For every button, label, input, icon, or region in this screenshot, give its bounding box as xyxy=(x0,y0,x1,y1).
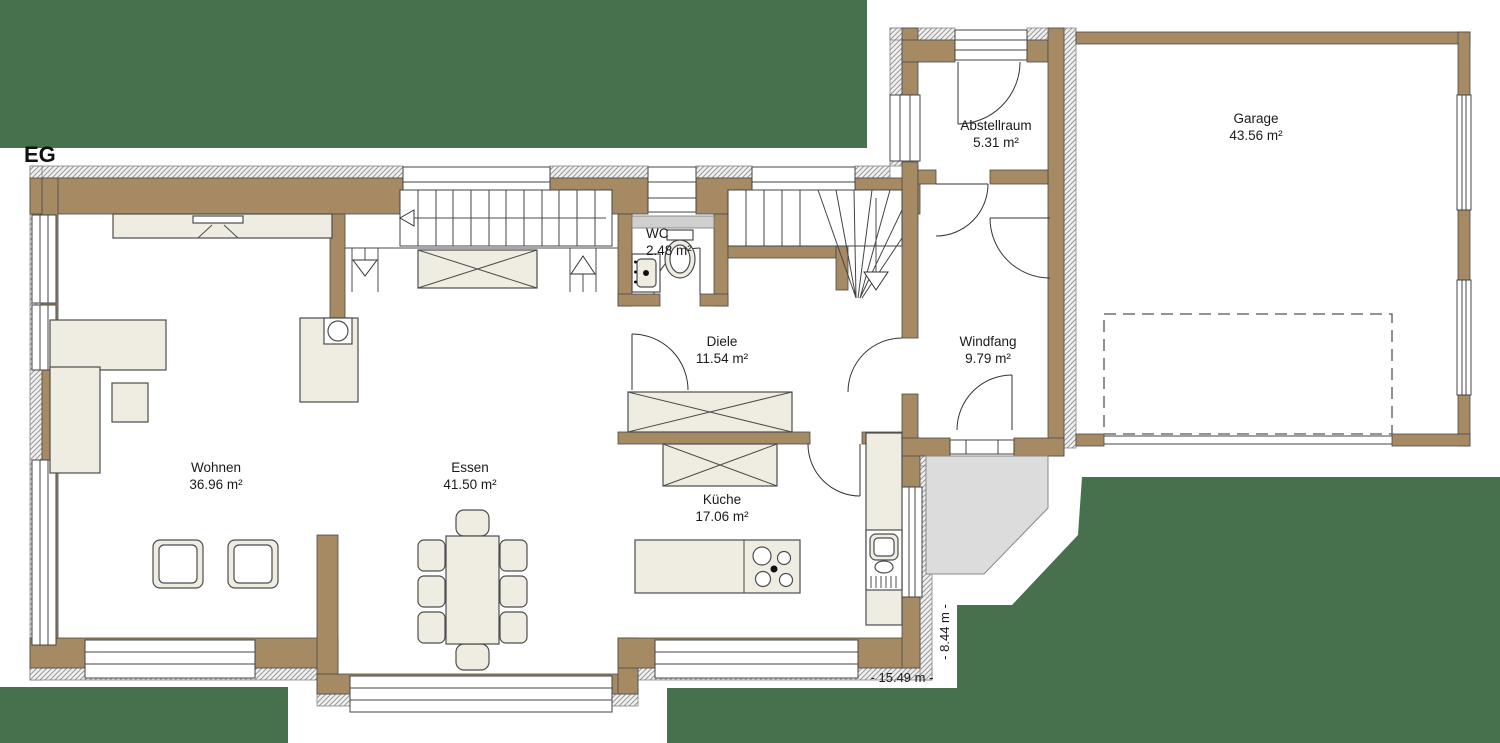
window-west-upper xyxy=(32,215,56,303)
window-south-wohnen xyxy=(85,640,255,678)
lawn-bottom-right xyxy=(667,477,1500,743)
wall-wing-north-1 xyxy=(902,40,955,62)
window-garage-east-2 xyxy=(1457,280,1471,395)
wardrobes xyxy=(418,250,792,486)
room-label-essen: Essen41.50 m² xyxy=(443,460,497,492)
dining-chair xyxy=(418,576,445,607)
dining-chair xyxy=(500,540,527,571)
door-front-entrance xyxy=(957,375,1012,430)
wall-wing-west-2 xyxy=(902,162,918,338)
dining-table xyxy=(446,536,499,644)
wc-shelf xyxy=(632,216,714,228)
dining-chair xyxy=(418,612,445,643)
garage-door-clearance xyxy=(1104,314,1392,434)
dining-chair xyxy=(456,510,489,536)
door-windfang-garage xyxy=(990,218,1050,278)
step-down-arrow-icon xyxy=(353,260,377,276)
wall-wing-east xyxy=(1048,28,1064,456)
armchair-2 xyxy=(228,540,278,588)
armchair-1 xyxy=(153,540,203,588)
wall-wc-south-2 xyxy=(700,294,728,306)
wall-abstell-windfang-2 xyxy=(990,170,1048,184)
window-west-lower xyxy=(32,460,56,645)
lawn-top-left xyxy=(0,0,867,148)
sofa xyxy=(50,320,166,473)
room-label-abstellraum: Abstellraum5.31 m² xyxy=(960,118,1031,150)
step-up-arrow-icon xyxy=(571,256,595,274)
sideboard xyxy=(113,214,332,238)
washbasin-icon xyxy=(632,254,660,292)
floor-label: EG xyxy=(24,142,56,167)
dimension-depth-label: - 8.44 m - xyxy=(937,604,952,660)
window-east-kueche xyxy=(902,487,922,597)
window-abstellraum-west xyxy=(890,95,920,161)
kueche-cupboard xyxy=(663,444,777,486)
wall-garage-north xyxy=(1076,32,1470,44)
essen-furniture xyxy=(418,510,527,670)
dining-chair xyxy=(418,540,445,571)
wall-north-1 xyxy=(30,178,403,214)
kitchen-counter-east xyxy=(866,433,902,625)
wohnen-furniture xyxy=(50,214,358,588)
wall-windfang-south-1 xyxy=(902,438,950,456)
abstellraum-door-threshold xyxy=(955,30,1027,60)
floorplan-drawing: EG Wohnen36.96 m² Essen41.50 m² Küche17.… xyxy=(0,0,1500,743)
wall-bay-west xyxy=(317,535,338,694)
kitchen-island xyxy=(635,540,800,593)
room-label-kueche: Küche17.06 m² xyxy=(695,492,749,524)
window-south-bay xyxy=(350,676,612,712)
front-door-threshold xyxy=(950,440,1014,454)
wall-stair2-knee xyxy=(728,246,836,258)
dining-chair xyxy=(500,612,527,643)
window-south-kueche xyxy=(655,640,858,678)
fireplace xyxy=(300,318,358,402)
wall-garage-south-2 xyxy=(1392,434,1470,446)
floorplan-page: EG Wohnen36.96 m² Essen41.50 m² Küche17.… xyxy=(0,0,1500,743)
sink-unit-icon xyxy=(866,530,902,590)
hatch-north-2 xyxy=(550,166,648,178)
room-label-wohnen: Wohnen36.96 m² xyxy=(189,460,243,492)
dining-chair xyxy=(456,644,489,670)
entrance-porch xyxy=(926,456,1048,574)
wall-wc-west xyxy=(618,214,632,306)
wall-diele-south-1 xyxy=(618,432,810,444)
hatch-wing-north-1 xyxy=(890,28,955,40)
dining-chair xyxy=(500,576,527,607)
lawn-bottom-left xyxy=(0,687,288,743)
door-windfang-abstellraum xyxy=(936,184,988,236)
stair-closet xyxy=(418,250,537,288)
room-label-diele: Diele11.54 m² xyxy=(696,334,749,366)
stair-winder xyxy=(728,190,902,298)
wall-wc-east xyxy=(714,214,728,306)
wall-windfang-south-2 xyxy=(1014,438,1064,456)
wall-wing-north-2 xyxy=(1027,40,1048,62)
wall-stair2-stub xyxy=(836,246,848,290)
door-abstellraum-exterior xyxy=(958,62,1020,124)
wall-abstell-windfang-1 xyxy=(918,170,936,184)
room-label-windfang: Windfang9.79 m² xyxy=(959,334,1016,366)
coffee-table xyxy=(112,383,148,422)
wall-garage-south-1 xyxy=(1076,434,1104,446)
hatch-north-1 xyxy=(30,166,403,178)
dimension-width-label: - 15.49 m - xyxy=(871,670,934,685)
hatch-north-4 xyxy=(855,166,890,178)
window-garage-east-1 xyxy=(1457,95,1471,210)
hatch-north-3 xyxy=(696,166,752,178)
wall-wc-south-1 xyxy=(618,294,660,306)
door-diele-kueche xyxy=(808,444,860,496)
door-wohnen-diele xyxy=(632,334,688,390)
window-north-wc xyxy=(648,167,696,212)
diele-wardrobe xyxy=(628,392,792,432)
garage-door xyxy=(1104,436,1392,444)
hatch-wing-east xyxy=(1064,28,1076,448)
door-diele-windfang xyxy=(848,338,902,392)
room-label-garage: Garage43.56 m² xyxy=(1229,111,1283,143)
